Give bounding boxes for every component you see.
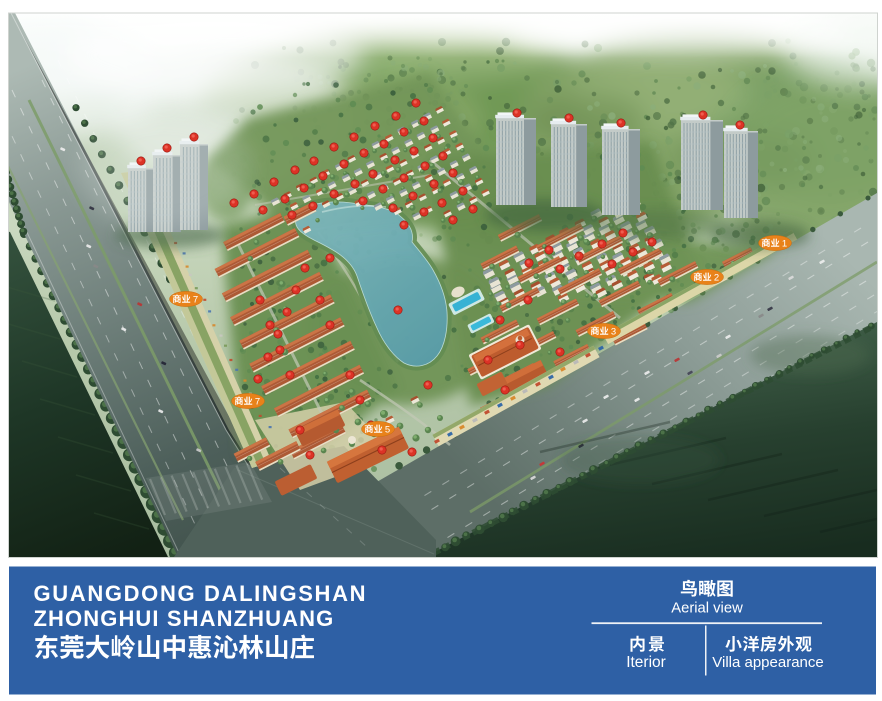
svg-text:2: 2 — [714, 272, 719, 283]
svg-text:5: 5 — [385, 424, 390, 435]
svg-text:GUANGDONG DALINGSHAN: GUANGDONG DALINGSHAN — [34, 581, 368, 606]
svg-text:7: 7 — [255, 396, 260, 407]
svg-text:Iterior: Iterior — [626, 654, 666, 671]
svg-text:1: 1 — [782, 238, 787, 249]
svg-text:7: 7 — [193, 294, 198, 305]
svg-text:Aerial view: Aerial view — [671, 601, 743, 617]
svg-text:3: 3 — [611, 326, 616, 337]
svg-text:Villa appearance: Villa appearance — [712, 654, 823, 671]
svg-text:ZHONGHUI SHANZHUANG: ZHONGHUI SHANZHUANG — [34, 606, 335, 631]
